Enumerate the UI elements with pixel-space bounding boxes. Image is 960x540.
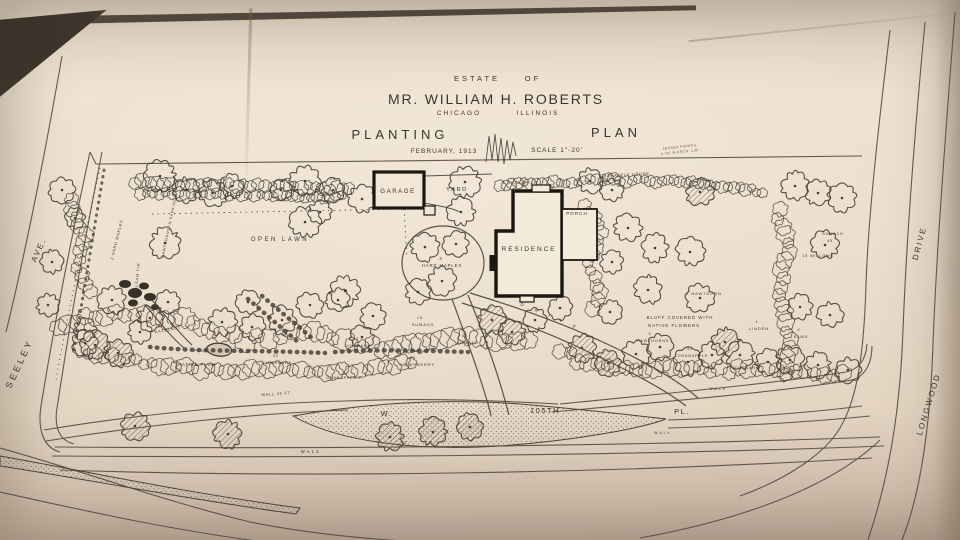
tree-center-dot [117, 352, 120, 355]
street-label-105th: 105TH [530, 406, 560, 415]
tree-center-dot [847, 369, 850, 372]
tree-center-dot [699, 191, 702, 194]
shrub-symbol [773, 201, 789, 217]
tree-center-dot [824, 244, 827, 247]
plant-label: LINDEN [749, 326, 769, 331]
plant-label: HARD MAPLES [422, 263, 462, 268]
tree-center-dot [221, 321, 224, 324]
plant-label: SHEEPBERRY [399, 362, 435, 367]
plant-label: 32 [273, 354, 279, 358]
plant-label: 28 [330, 177, 336, 181]
tree-center-dot [794, 185, 797, 188]
tree-center-dot [251, 326, 254, 329]
tree-center-dot [304, 180, 307, 183]
street-curb-right [668, 406, 870, 428]
shrub-symbol [590, 279, 604, 293]
tree-center-dot [469, 426, 472, 429]
plant-label: CRABAPPLE HEDGE [600, 172, 650, 179]
plant-label: CRABAPPLE 2 [326, 376, 361, 380]
lawn-dotted [152, 209, 407, 258]
title-city: CHICAGO [437, 110, 481, 117]
labels-static: ESTATE OF MR. WILLIAM H. ROBERTS CHICAGO… [4, 74, 943, 454]
street-label-drive: DRIVE [911, 226, 929, 262]
tree-center-dot [227, 433, 230, 436]
tree-center-dot [51, 261, 54, 264]
tree-center-dot [687, 361, 690, 364]
tree-center-dot [159, 175, 162, 178]
plant-label: SUMACH [822, 232, 844, 236]
tree-center-dot [337, 299, 340, 302]
shrub-symbol [663, 175, 674, 185]
plant-label: ELMS [794, 334, 808, 339]
tree-center-dot [767, 361, 770, 364]
tree-center-dot [231, 185, 234, 188]
shrub-symbol [193, 319, 209, 337]
shrub-symbol [674, 176, 685, 188]
tree-center-dot [432, 431, 435, 434]
shrub-symbol [75, 268, 90, 283]
street-label-w: W. [381, 409, 392, 418]
shrub-symbol [134, 188, 146, 200]
shrub-symbol [186, 189, 195, 199]
tree-center-dot [280, 189, 283, 192]
plant-label: 45 [827, 239, 833, 243]
tree-center-dot [739, 354, 742, 357]
shrub-symbol [684, 360, 698, 374]
tree-center-dot [559, 307, 562, 310]
plant-label: 3 [439, 256, 443, 261]
yard-label: YARD [446, 187, 468, 193]
tree-center-dot [372, 315, 375, 318]
tree-center-dot [332, 189, 335, 192]
tree-center-dot [534, 319, 537, 322]
tree-center-dot [309, 304, 312, 307]
tree-center-dot [417, 291, 420, 294]
porch-label: PORCH [566, 211, 588, 216]
tree-center-dot [424, 246, 427, 249]
tree-center-dot [361, 198, 364, 201]
tree-center-dot [817, 364, 820, 367]
plant-label: 45 [281, 178, 287, 182]
tree-center-dot [167, 301, 170, 304]
road-seeley-curb1 [40, 152, 90, 452]
tree-center-dot [654, 247, 657, 250]
shrub-symbol [378, 360, 393, 375]
plant-label: CRABAPPLE [678, 354, 708, 358]
tree-center-dot [139, 331, 142, 334]
shrub-symbol [591, 293, 606, 308]
plant-label: 1 HAWTHORN [686, 291, 722, 296]
tree-center-dot [647, 289, 650, 292]
plant-label: SUMACH [412, 322, 435, 327]
shrub-symbol [218, 188, 228, 199]
tree-center-dot [611, 261, 614, 264]
plant-label: 2 [648, 331, 651, 336]
shrub-symbol [107, 304, 123, 321]
shrub-symbol [147, 357, 157, 368]
tree-center-dot [829, 314, 832, 317]
shrub-symbol [251, 178, 264, 190]
title-of: OF [525, 74, 541, 83]
title-estate: ESTATE [454, 74, 500, 83]
title-scale: SCALE 1"-20' [531, 147, 583, 154]
shrub-symbol [776, 252, 794, 270]
walk-label-1: WALK [301, 449, 322, 454]
plant-label: NINEBARK [345, 344, 371, 348]
plant-label: NATIVE FLOWERS [648, 323, 700, 328]
tree-center-dot [361, 336, 364, 339]
tree-center-dot [455, 243, 458, 246]
shrub-symbol [650, 176, 662, 188]
plant-label: BLUFF COVERED WITH [647, 315, 714, 320]
road-longwood-curb1 [740, 30, 890, 496]
plant-label: NINEBARK [266, 361, 292, 365]
plant-label: HAWTHORNS [637, 339, 669, 343]
plant-label: 52 [462, 333, 468, 338]
street-label-seeley: SEELEY [4, 338, 35, 390]
corner-sweep-left [0, 448, 520, 540]
plant-label: 15 [417, 315, 423, 320]
street-label-longwood: LONGWOOD [915, 372, 942, 436]
tree-center-dot [111, 299, 114, 302]
tree-center-dot [304, 221, 307, 224]
shrub-symbol [172, 187, 184, 199]
tree-center-dot [611, 189, 614, 192]
plant-label: 30 [687, 347, 693, 351]
tree-center-dot [319, 211, 322, 214]
tree-center-dot [149, 317, 152, 320]
title-planting: PLANTING [351, 127, 448, 142]
islands-layer [0, 402, 666, 514]
plant-label: NINEBARK [733, 366, 759, 370]
street-label-ave: AVE. [29, 236, 48, 263]
tree-center-dot [281, 319, 284, 322]
tree-center-dot [247, 301, 250, 304]
tree-center-dot [441, 280, 444, 283]
corner-island [0, 456, 300, 514]
shrub-symbol [292, 361, 309, 378]
shrub-symbol [663, 358, 681, 376]
plant-label: WALL 45 FT. [261, 391, 292, 397]
plant-label: SUMACH [457, 340, 480, 345]
tree-center-dot [841, 197, 844, 200]
shrub-symbol [772, 288, 785, 302]
tree-center-dot [511, 331, 514, 334]
tree-center-dot [74, 217, 77, 220]
planting-plan-photo: ESTATE OF MR. WILLIAM H. ROBERTS CHICAGO… [0, 0, 960, 540]
tree-center-dot [491, 319, 494, 322]
title-date: FEBRUARY, 1913 [411, 148, 478, 155]
shrub-symbol [776, 272, 790, 286]
title-name: MR. WILLIAM H. ROBERTS [388, 91, 604, 107]
tree-center-dot [627, 227, 630, 230]
walk-label-3: WALK [654, 431, 671, 435]
plant-label: 1 [755, 319, 758, 324]
shrub-symbol [336, 362, 349, 375]
tree-center-dot [185, 189, 188, 192]
garage-stoop [424, 206, 435, 215]
tree-center-dot [84, 342, 87, 345]
tree-center-dot [711, 354, 714, 357]
plant-label: 2 HARD MAPLES [110, 219, 124, 260]
tree-center-dot [212, 192, 215, 195]
shrub-symbol [585, 174, 595, 184]
tree-center-dot [699, 297, 702, 300]
tree-center-dot [635, 353, 638, 356]
tree-center-dot [61, 189, 64, 192]
shrub-symbol [585, 265, 596, 276]
street-south-line [60, 458, 872, 474]
residence-outline [496, 191, 562, 296]
tree-center-dot [47, 304, 50, 307]
plant-label: 1 CRABAPPLE [502, 181, 537, 185]
title-state: ILLINOIS [517, 110, 560, 117]
plant-label: D [520, 302, 526, 308]
plant-label: 50 [410, 355, 416, 360]
shrub-symbol [75, 235, 90, 251]
tree-center-dot [609, 311, 612, 314]
tree-center-dot [94, 344, 97, 347]
road-longwood-curb2 [868, 22, 925, 540]
shrub-symbol [74, 253, 86, 265]
tree-center-dot [817, 192, 820, 195]
shrub-symbol [167, 311, 183, 327]
open-lawn-label: OPEN LAWN [251, 237, 309, 243]
plant-label: 15 WILLOWS [802, 254, 834, 258]
tree-center-dot [789, 359, 792, 362]
plant-label: 40 [401, 441, 407, 445]
shrub-symbol [774, 281, 788, 295]
tree-center-dot [389, 436, 392, 439]
tree-center-dot [799, 306, 802, 309]
residence-door [490, 255, 496, 271]
walk-label-2: WALK [709, 387, 727, 391]
residence-label: RESIDENCE [502, 246, 557, 253]
tree-center-dot [724, 341, 727, 344]
rear-step [532, 185, 550, 192]
street-label-pl: PL. [674, 407, 690, 416]
plant-label: R [534, 307, 540, 313]
title-plan: PLAN [591, 125, 641, 140]
road-seeley-outer [6, 56, 62, 332]
tree-center-dot [134, 425, 137, 428]
tree-center-dot [581, 347, 584, 350]
water-layer [119, 280, 468, 356]
tree-center-dot [659, 346, 662, 349]
tree-center-dot [607, 362, 610, 365]
tree-center-dot [460, 211, 463, 214]
plant-label: NATIVE PLUM [178, 362, 216, 367]
road-seeley-curb2 [56, 152, 102, 444]
garage-label: GARAGE [380, 188, 415, 195]
plant-label: 2 [797, 327, 800, 332]
tree-center-dot [689, 251, 692, 254]
tree-center-dot [464, 181, 467, 184]
tree-center-dot [589, 180, 592, 183]
plant-label: 10 [353, 337, 359, 341]
plant-label: V [559, 318, 565, 324]
shrub-symbol [645, 361, 663, 379]
shrub-symbol [95, 308, 114, 327]
plan-drawing: ESTATE OF MR. WILLIAM H. ROBERTS CHICAGO… [0, 0, 960, 540]
road-longwood-curb3 [902, 12, 955, 540]
corner-sweep-right [640, 440, 880, 538]
plant-label: POOL [194, 349, 207, 353]
porch-outline [562, 209, 597, 260]
